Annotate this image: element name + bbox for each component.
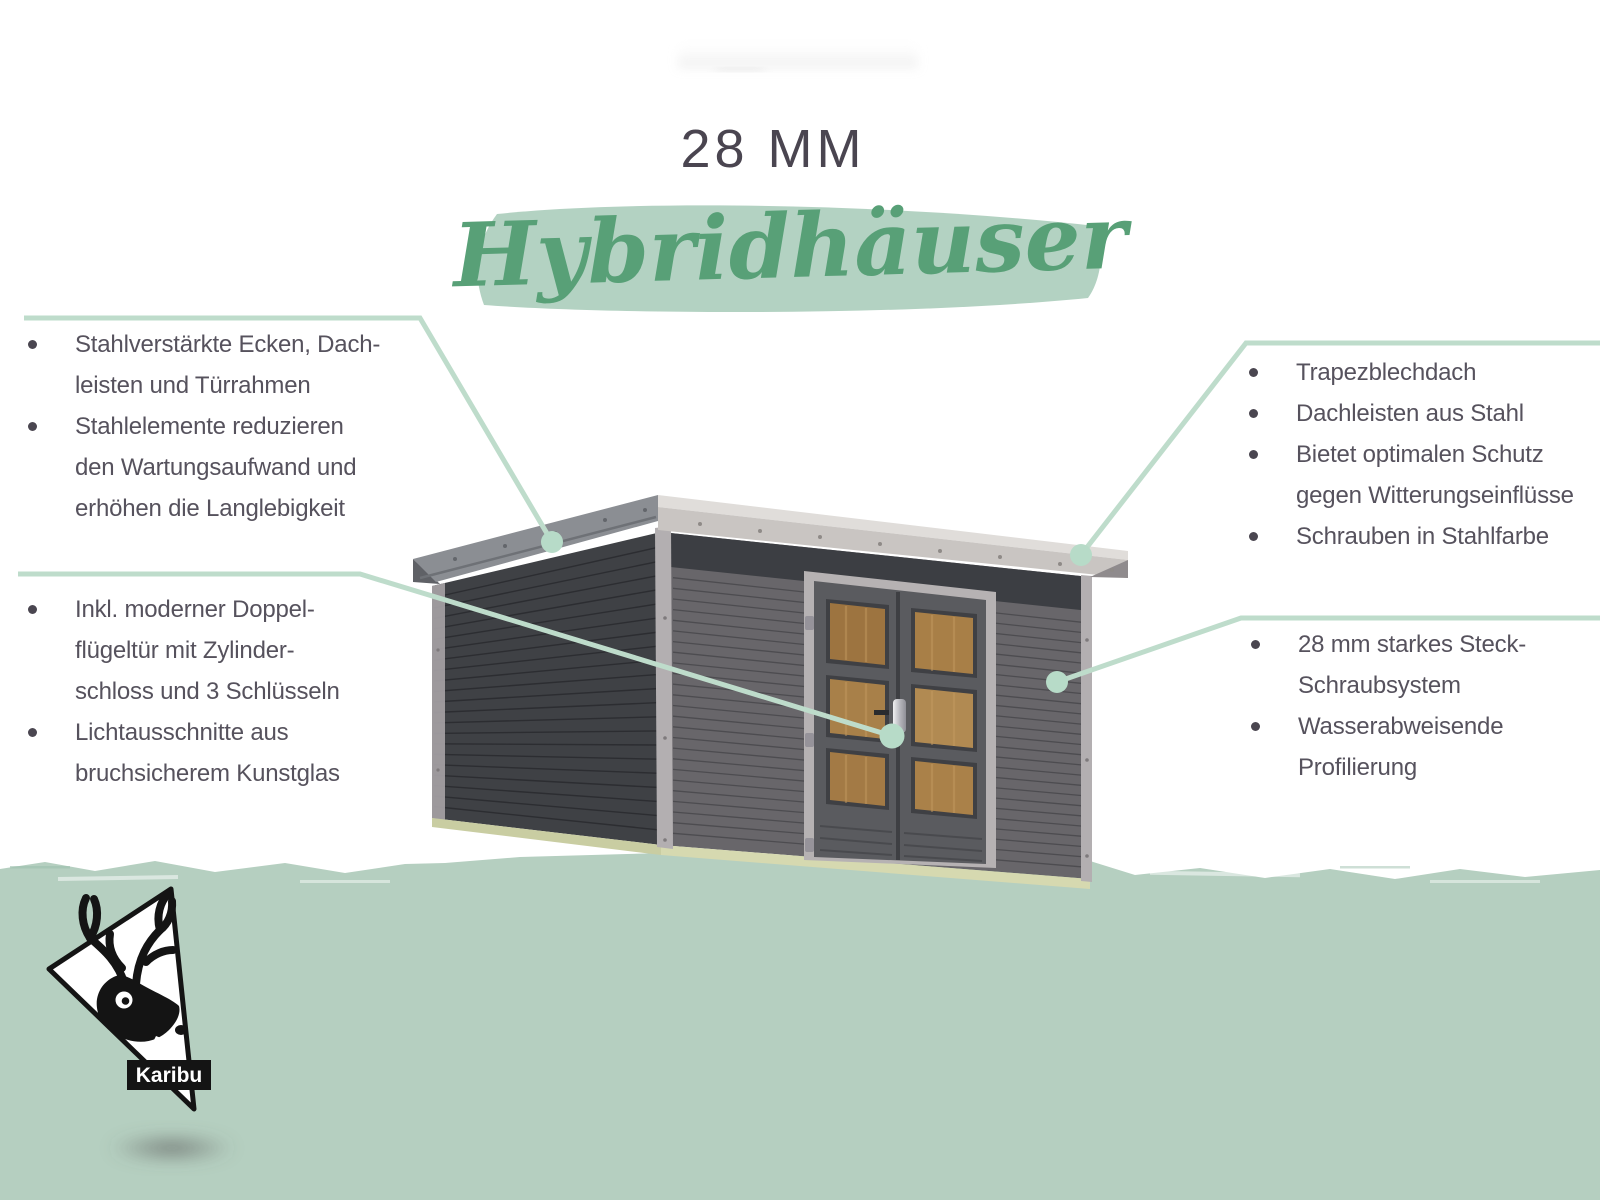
feature-line: erhöhen die Langlebigkeit [75, 488, 356, 529]
bullet-icon [1249, 368, 1258, 377]
list-item: Dachleisten aus Stahl [1243, 393, 1574, 434]
shed-illustration [413, 495, 1128, 889]
feature-line: Trapezblechdach [1296, 352, 1476, 393]
list-item: Bietet optimalen Schutz gegen Witterungs… [1243, 434, 1574, 516]
bullet-icon [1251, 722, 1260, 731]
callout-dot-roof-left [541, 531, 563, 553]
feature-line: bruchsicherem Kunstglas [75, 753, 340, 794]
feature-line: Schraubsystem [1298, 665, 1526, 706]
list-item: Stahlelemente reduzieren den Wartungsauf… [22, 406, 380, 529]
feature-line: flügeltür mit Zylinder- [75, 630, 340, 671]
top-shadow-smudge [678, 38, 918, 71]
feature-list-bottom-left: Inkl. moderner Doppel- flügeltür mit Zyl… [22, 589, 340, 794]
list-item: Inkl. moderner Doppel- flügeltür mit Zyl… [22, 589, 340, 712]
feature-line: Lichtausschnitte aus [75, 712, 340, 753]
feature-line: Stahlelemente reduzieren [75, 406, 356, 447]
feature-line: Wasserabweisende [1298, 706, 1503, 747]
bullet-icon [28, 340, 37, 349]
bullet-icon [28, 728, 37, 737]
subtitle-script: Hybridhäuser [419, 182, 1162, 311]
feature-line: leisten und Türrahmen [75, 365, 380, 406]
feature-line: Inkl. moderner Doppel- [75, 589, 340, 630]
keyhole-slot [874, 710, 889, 715]
feature-list-bottom-right: 28 mm starkes Steck- Schraubsystem Wasse… [1245, 624, 1526, 788]
bullet-icon [28, 605, 37, 614]
feature-line: den Wartungsaufwand und [75, 447, 356, 488]
feature-line: Stahlverstärkte Ecken, Dach- [75, 324, 380, 365]
feature-line: Schrauben in Stahlfarbe [1296, 516, 1549, 557]
callout-dot-wall [1046, 671, 1068, 693]
bullet-icon [1249, 532, 1258, 541]
logo-label: Karibu [136, 1064, 203, 1087]
front-left-corner-trim [655, 526, 673, 849]
bullet-icon [1249, 409, 1258, 418]
page-title: 28 MM [473, 121, 1073, 177]
list-item: Schrauben in Stahlfarbe [1243, 516, 1574, 557]
callout-dot-roof-right [1070, 544, 1092, 566]
front-right-corner-trim [1081, 575, 1092, 882]
ground-band [0, 853, 1600, 1200]
feature-list-top-left: Stahlverstärkte Ecken, Dach- leisten und… [22, 324, 380, 529]
feature-line: Profilierung [1298, 747, 1503, 788]
logo-ground-shadow [108, 1134, 236, 1162]
bullet-icon [28, 422, 37, 431]
left-back-corner-trim [432, 583, 445, 821]
list-item: 28 mm starkes Steck- Schraubsystem [1245, 624, 1526, 706]
callout-dot-door-handle [880, 724, 905, 749]
feature-line: 28 mm starkes Steck- [1298, 624, 1526, 665]
feature-line: Dachleisten aus Stahl [1296, 393, 1524, 434]
list-item: Wasserabweisende Profilierung [1245, 706, 1526, 788]
feature-line: gegen Witterungseinflüsse [1296, 475, 1574, 516]
feature-line: schloss und 3 Schlüsseln [75, 671, 340, 712]
bullet-icon [1249, 450, 1258, 459]
list-item: Stahlverstärkte Ecken, Dach- leisten und… [22, 324, 380, 406]
infographic-page: Karibu 28 MM Hybridhäuser Stahlverstärkt… [0, 0, 1600, 1200]
bullet-icon [1251, 640, 1260, 649]
list-item: Lichtausschnitte aus bruchsicherem Kunst… [22, 712, 340, 794]
feature-list-top-right: Trapezblechdach Dachleisten aus Stahl Bi… [1243, 352, 1574, 557]
list-item: Trapezblechdach [1243, 352, 1574, 393]
feature-line: Bietet optimalen Schutz [1296, 434, 1574, 475]
subtitle-wrap: Hybridhäuser [419, 182, 1162, 311]
